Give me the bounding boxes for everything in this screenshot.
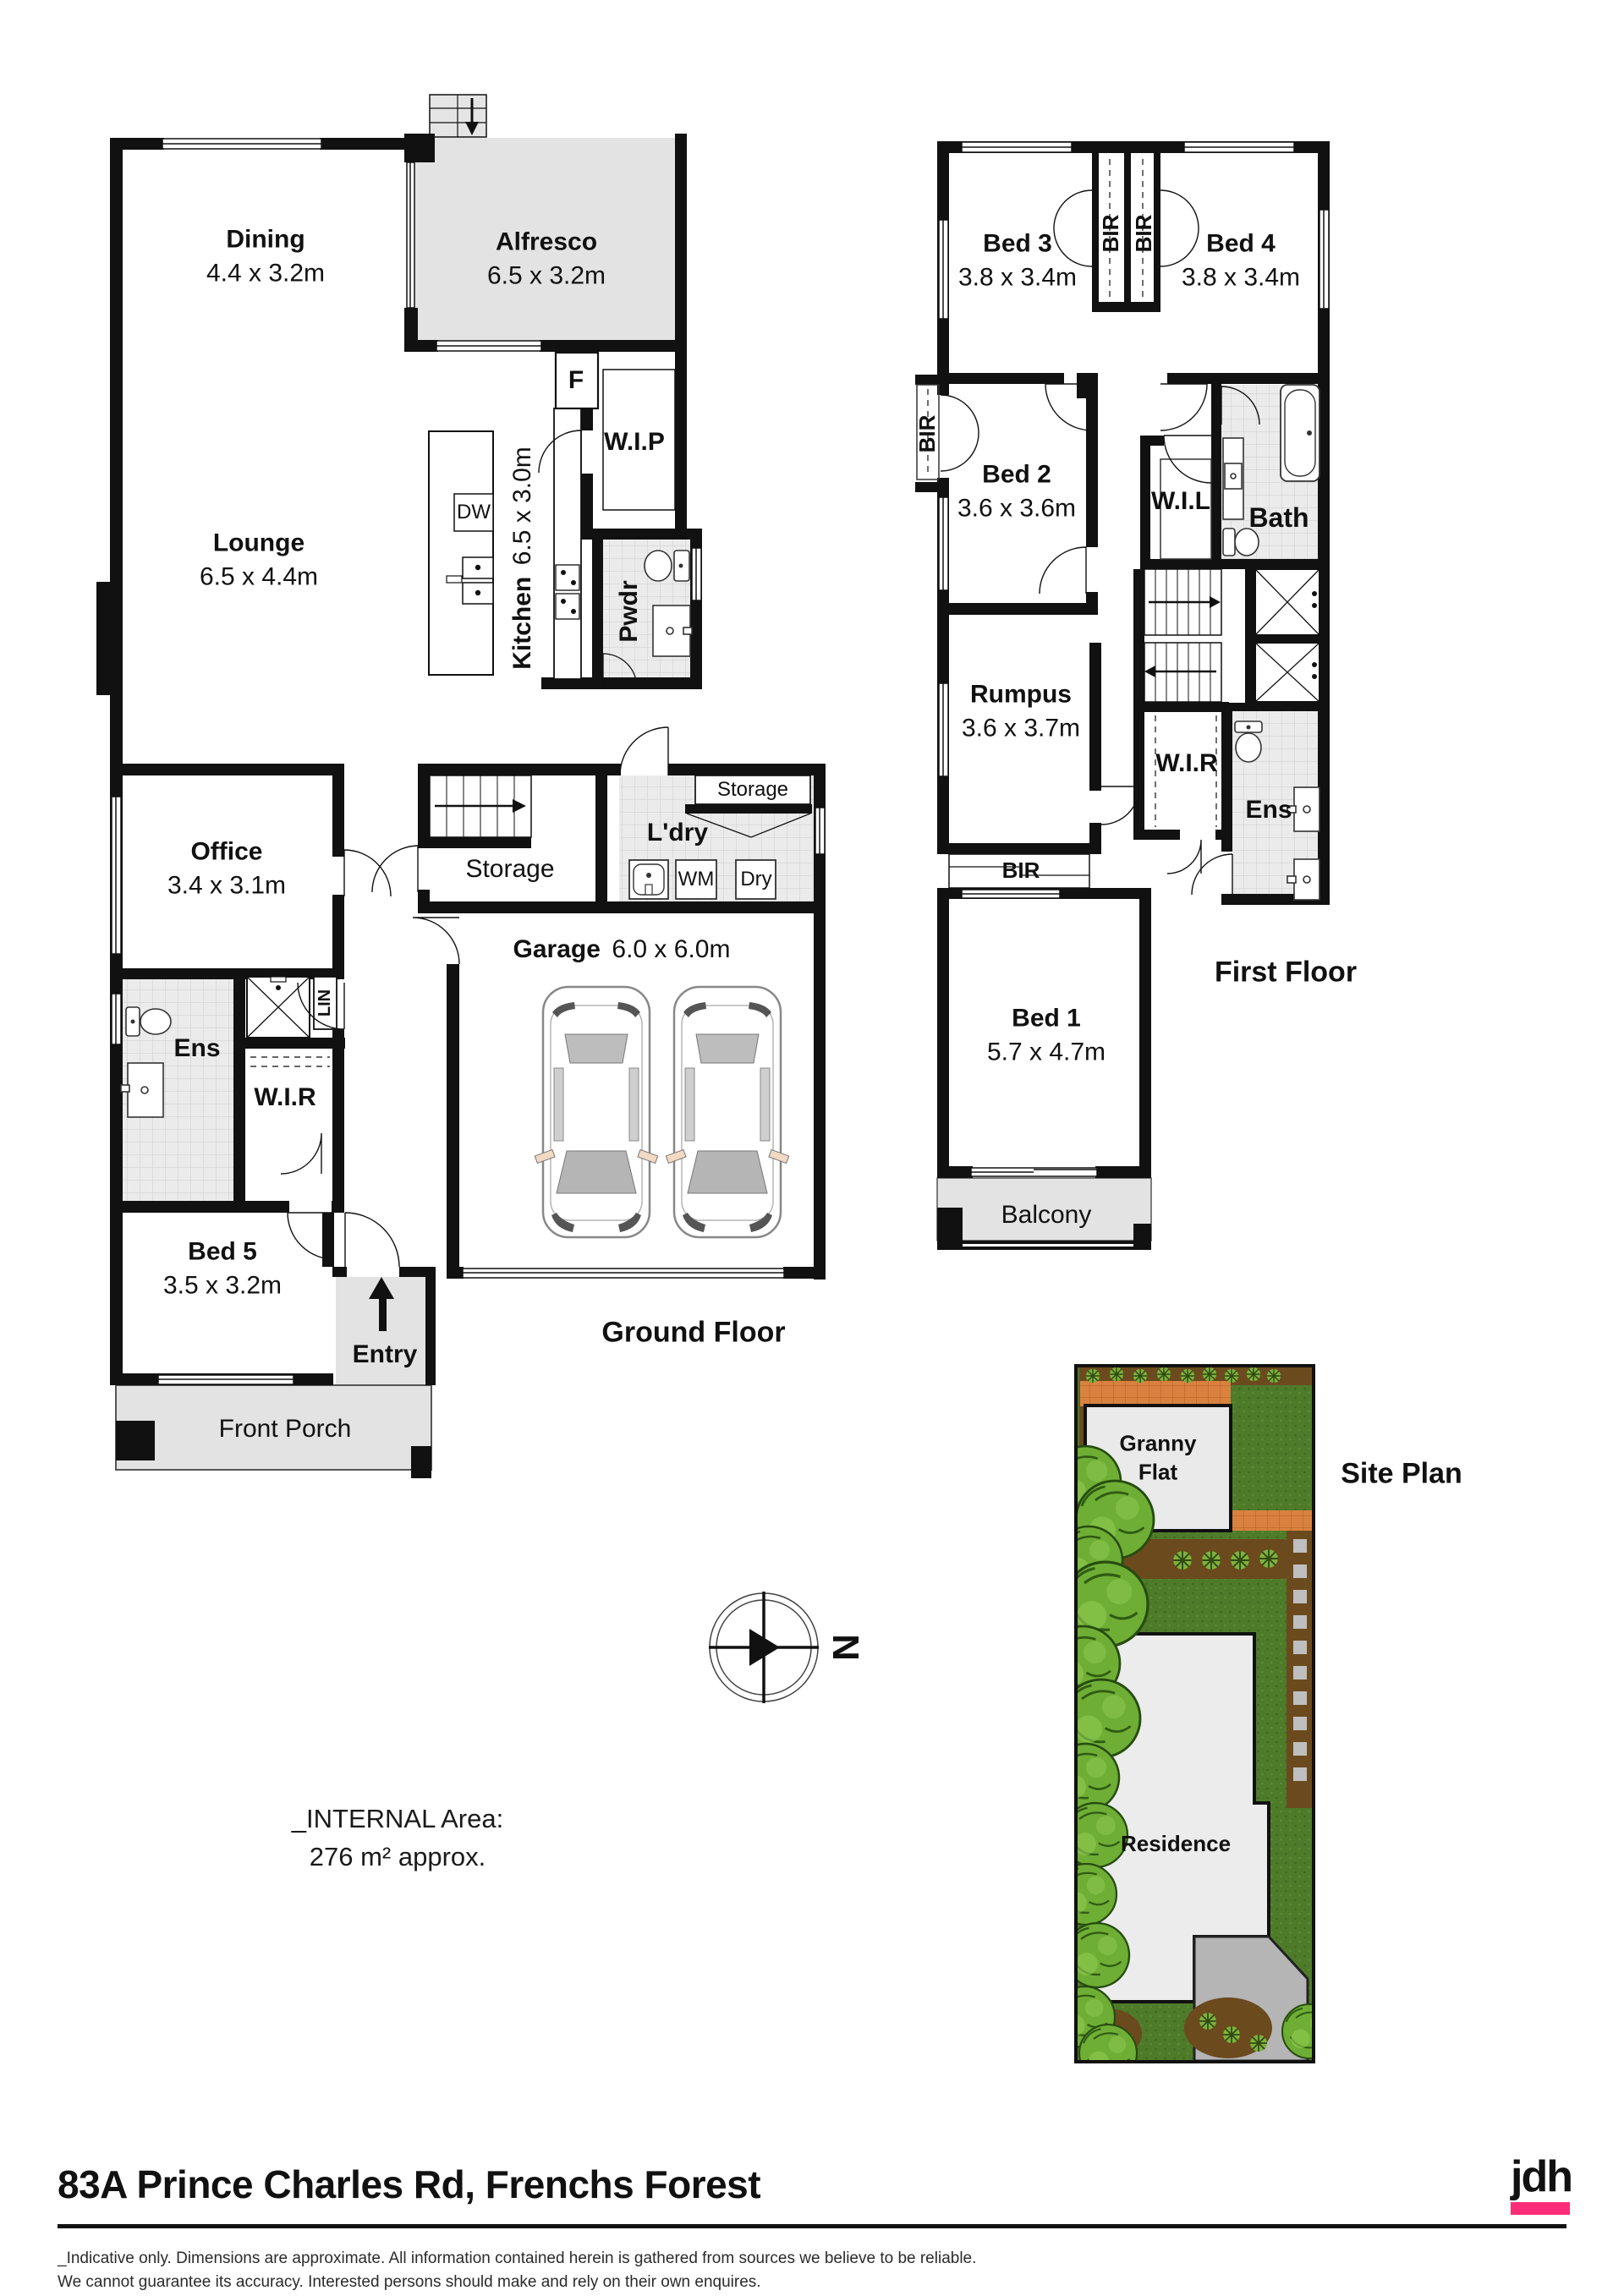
room-label-dining: Dining 4.4 x 3.2m [206, 222, 325, 289]
room-label-wip: W.I.P [604, 425, 665, 459]
room-label-bath: Bath [1248, 500, 1309, 535]
ground-shower-icon [247, 977, 310, 1038]
room-label-alfresco: Alfresco 6.5 x 3.2m [487, 225, 606, 292]
room-label-wir-ground: W.I.R [254, 1081, 315, 1115]
room-label-bed3: Bed 3 3.8 x 3.4m [958, 227, 1077, 293]
disclaimer-line1: _Indicative only. Dimensions are approxi… [58, 2249, 976, 2268]
agency-logo-accent-bar [1511, 2202, 1570, 2215]
room-label-entry: Entry [353, 1338, 418, 1372]
north-label: N [824, 1634, 866, 1661]
disclaimer-line2: We cannot guarantee its accuracy. Intere… [58, 2273, 761, 2292]
room-label-balcony: Balcony [1001, 1198, 1092, 1232]
room-label-bir-bed1: BIR [1002, 856, 1040, 885]
dryer-label: Dry [740, 866, 771, 893]
room-label-bed4: Bed 4 3.8 x 3.4m [1182, 227, 1300, 293]
room-label-ensuite-ground: Ens [173, 1032, 220, 1066]
room-label-storage-understairs: Storage [465, 852, 554, 886]
granny-flat-label: Granny Flat [1119, 1429, 1196, 1488]
internal-area-note: _INTERNAL Area: 276 m² approx. [292, 1800, 503, 1877]
car-icon [666, 987, 788, 1237]
kitchen-island-icon [429, 431, 493, 675]
footer-divider [58, 2224, 1566, 2228]
first-stairs-icon [1144, 569, 1221, 702]
room-label-office: Office 3.4 x 3.1m [167, 835, 286, 901]
room-label-garage: Garage 6.0 x 6.0m [513, 933, 731, 967]
property-address: 83A Prince Charles Rd, Frenchs Forest [58, 2162, 760, 2207]
residence-label: Residence [1121, 1829, 1231, 1858]
bathtub-icon [1281, 385, 1319, 481]
floorplan-graphics [0, 0, 1624, 2296]
ground-stairs-arrow [513, 799, 526, 813]
room-label-laundry: L'dry [647, 816, 708, 850]
pwdr-toilet-icon [645, 551, 689, 581]
room-label-bir-bed4: BIR [1129, 215, 1158, 253]
room-label-wil: W.I.L [1151, 485, 1210, 518]
compass-icon [709, 1592, 819, 1703]
room-label-bed1: Bed 1 5.7 x 4.7m [987, 1001, 1106, 1068]
site-plan-title: Site Plan [1341, 1455, 1462, 1493]
washing-machine-label: WM [678, 866, 715, 893]
ground-wir-rails [250, 1057, 330, 1066]
room-label-lounge: Lounge 6.5 x 4.4m [200, 526, 318, 593]
room-label-front-porch: Front Porch [219, 1412, 352, 1446]
laundry-tub-icon [629, 860, 668, 899]
ground-floor-title: Ground Floor [601, 1314, 785, 1352]
bir-closets-icon [917, 159, 1143, 479]
bath-vanity-icon [1223, 438, 1243, 519]
agency-logo: jdh [1511, 2151, 1572, 2202]
shower-icons [1255, 569, 1319, 702]
room-label-linen: LIN [314, 989, 336, 1016]
room-label-bir-bed3: BIR [1096, 215, 1125, 253]
kitchen-bench-icon [554, 408, 581, 679]
first-floor-title: First Floor [1215, 954, 1357, 992]
room-label-kitchen: Kitchen 6.5 x 3.0m [506, 447, 540, 670]
room-label-storage-laundry: Storage [717, 776, 788, 803]
fridge-label: F [568, 364, 584, 397]
pwdr-vanity-icon [653, 606, 692, 656]
room-label-bir-bed2: BIR [913, 415, 941, 453]
room-label-wir-first: W.I.R [1155, 747, 1217, 781]
room-label-rumpus: Rumpus 3.6 x 3.7m [962, 677, 1080, 744]
room-label-bed2: Bed 2 3.6 x 3.6m [957, 458, 1076, 524]
room-label-bed5: Bed 5 3.5 x 3.2m [163, 1235, 282, 1301]
floorplan-page: Dining 4.4 x 3.2m Alfresco 6.5 x 3.2m Lo… [0, 0, 1624, 2296]
dishwasher-label: DW [457, 499, 491, 526]
alfresco-steps-icon [430, 95, 486, 137]
room-label-pwdr: Pwdr [612, 580, 646, 642]
car-icon [535, 987, 657, 1237]
room-label-ensuite-first: Ens [1245, 793, 1292, 827]
